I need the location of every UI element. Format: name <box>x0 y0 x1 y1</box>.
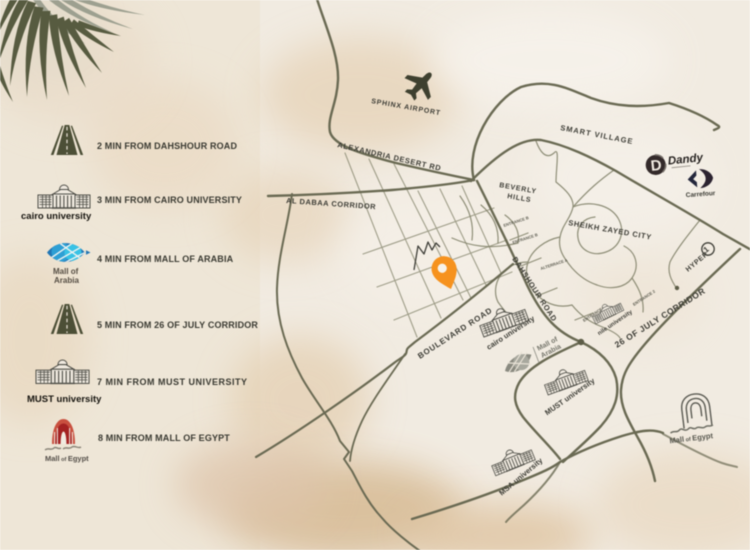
svg-text:3 MIN FROM CAIRO UNIVERSITY: 3 MIN FROM CAIRO UNIVERSITY <box>97 195 242 205</box>
svg-text:Arabia: Arabia <box>54 276 79 285</box>
svg-text:7 MIN FROM MUST UNIVERSITY: 7 MIN FROM MUST UNIVERSITY <box>97 377 248 387</box>
svg-text:4 MIN FROM MALL OF ARABIA: 4 MIN FROM MALL OF ARABIA <box>97 254 234 264</box>
svg-text:2 MIN FROM DAHSHOUR ROAD: 2 MIN FROM DAHSHOUR ROAD <box>97 141 237 151</box>
svg-text:D: D <box>650 157 663 175</box>
svg-text:cairo university: cairo university <box>21 211 92 222</box>
svg-text:8 MIN FROM MALL OF EGYPT: 8 MIN FROM MALL OF EGYPT <box>98 433 230 443</box>
svg-text:5 MIN FROM 26 OF JULY CORRIDOR: 5 MIN FROM 26 OF JULY CORRIDOR <box>97 320 258 330</box>
svg-text:Mall of: Mall of <box>53 267 79 276</box>
svg-text:Mall of Egypt: Mall of Egypt <box>45 454 89 463</box>
svg-text:MUST university: MUST university <box>27 394 102 405</box>
